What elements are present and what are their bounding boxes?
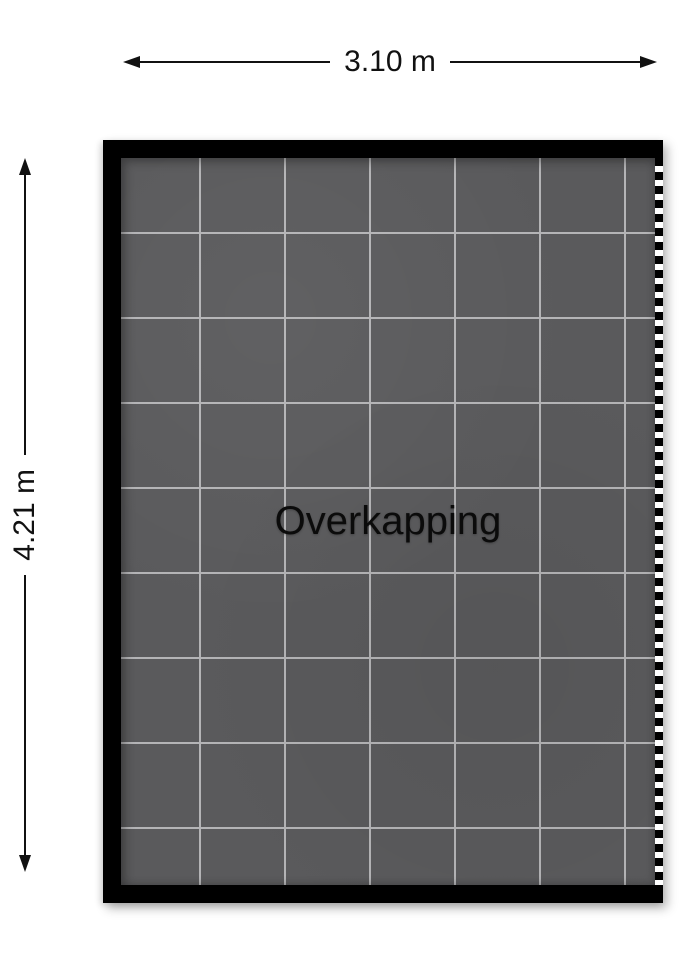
dimension-line-left xyxy=(140,61,330,63)
dimension-line-top xyxy=(24,175,26,455)
width-dimension: 3.10 m xyxy=(123,45,657,79)
arrow-left-icon xyxy=(123,56,140,68)
room-label: Overkapping xyxy=(275,499,502,544)
floorplan-canvas: 3.10 m 4.21 m Overkapping xyxy=(0,0,679,960)
room-floor-tiles: Overkapping xyxy=(121,158,655,885)
arrow-down-icon xyxy=(19,855,31,872)
room-outline: Overkapping xyxy=(103,140,663,903)
height-dimension: 4.21 m xyxy=(8,158,42,872)
dimension-line-bottom xyxy=(24,575,26,855)
dimension-line-right xyxy=(450,61,640,63)
open-side-dashed-edge xyxy=(655,158,663,885)
arrow-up-icon xyxy=(19,158,31,175)
height-dimension-label: 4.21 m xyxy=(10,455,40,575)
arrow-right-icon xyxy=(640,56,657,68)
width-dimension-label: 3.10 m xyxy=(330,47,450,77)
